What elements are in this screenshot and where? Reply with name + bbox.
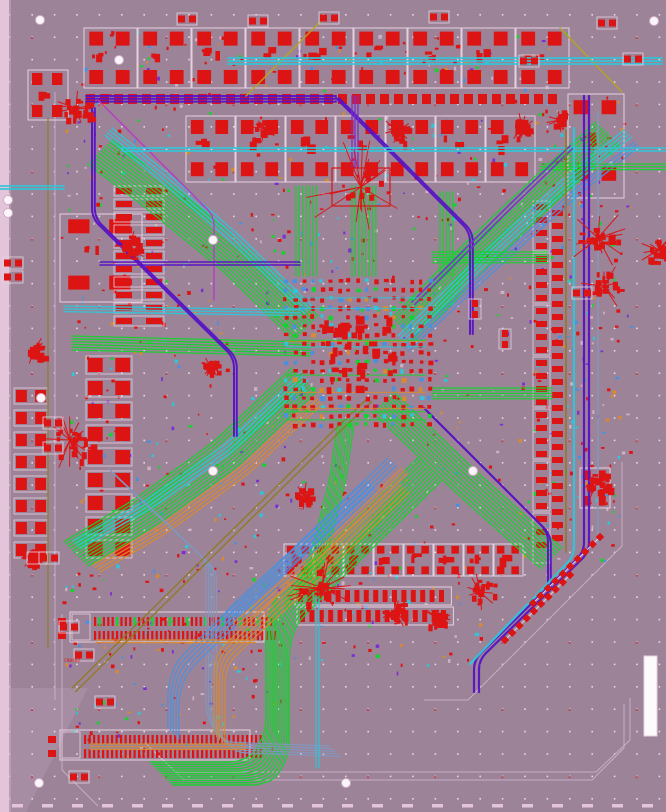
svg-text:CR0402: CR0402 [64,658,81,664]
keepout-bar [644,656,657,736]
silkscreen-labels: CR0402 [64,658,81,664]
pcb-board-canvas[interactable]: CR0402 [0,0,666,812]
pcb-viewer: CR0402 [0,0,666,812]
